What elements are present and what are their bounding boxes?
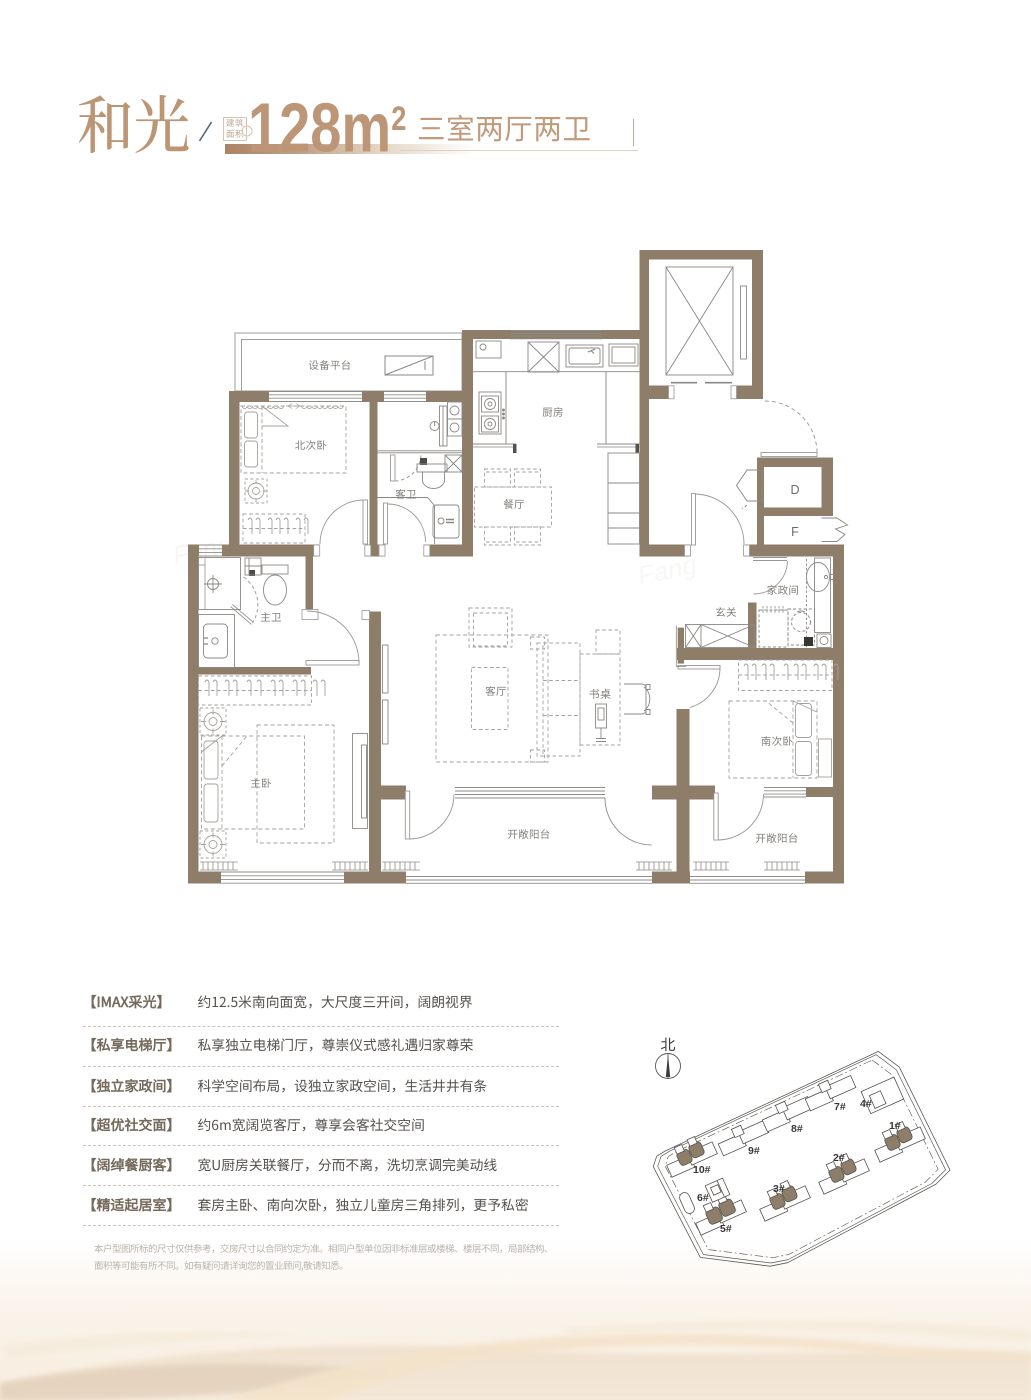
svg-text:客卫: 客卫 [395,487,417,502]
svg-text:2#: 2# [833,1152,845,1164]
svg-text:厨房: 厨房 [542,405,564,420]
svg-text:6#: 6# [697,1192,709,1204]
svg-text:8#: 8# [791,1123,803,1135]
svg-text:开敞阳台: 开敞阳台 [755,831,798,846]
svg-text:餐厅: 餐厅 [503,497,525,512]
svg-text:9#: 9# [748,1145,760,1157]
svg-text:5#: 5# [720,1223,732,1235]
svg-text:书桌: 书桌 [589,686,612,702]
svg-text:主卫: 主卫 [260,610,282,625]
svg-text:玄关: 玄关 [715,605,737,620]
svg-text:7#: 7# [834,1101,846,1113]
svg-text:北次卧: 北次卧 [295,438,328,453]
svg-text:北: 北 [660,1034,675,1055]
svg-text:3#: 3# [773,1183,785,1195]
svg-text:10#: 10# [693,1164,711,1176]
svg-text:1#: 1# [889,1120,901,1132]
svg-text:南次卧: 南次卧 [761,734,794,749]
svg-text:开敞阳台: 开敞阳台 [507,827,550,842]
svg-text:D: D [790,483,799,497]
svg-text:F: F [791,525,799,539]
svg-text:设备平台: 设备平台 [308,358,351,373]
svg-text:主卧: 主卧 [250,776,272,791]
svg-text:4#: 4# [860,1098,872,1110]
svg-text:客厅: 客厅 [485,684,507,699]
svg-text:家政间: 家政间 [767,583,799,598]
